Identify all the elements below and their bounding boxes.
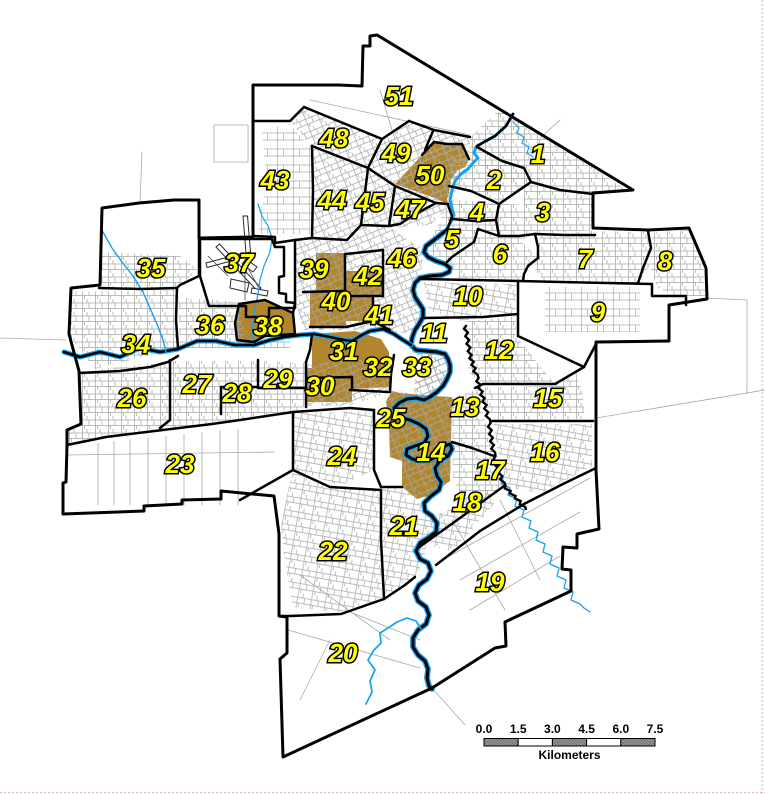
svg-text:32: 32 — [364, 352, 393, 382]
svg-text:16: 16 — [531, 437, 560, 467]
svg-text:28: 28 — [222, 378, 252, 408]
svg-text:7: 7 — [578, 244, 594, 274]
svg-text:6.0: 6.0 — [612, 722, 629, 736]
svg-text:20: 20 — [328, 638, 358, 668]
svg-text:50: 50 — [416, 160, 445, 190]
svg-text:44: 44 — [317, 185, 347, 215]
svg-text:47: 47 — [395, 194, 426, 224]
svg-text:31: 31 — [330, 336, 359, 366]
svg-text:19: 19 — [476, 567, 505, 597]
svg-text:10: 10 — [454, 281, 483, 311]
svg-text:4: 4 — [469, 197, 485, 227]
svg-text:3.0: 3.0 — [544, 722, 561, 736]
svg-text:4.5: 4.5 — [578, 722, 595, 736]
svg-text:2: 2 — [486, 165, 502, 195]
svg-text:34: 34 — [122, 329, 151, 359]
svg-text:5: 5 — [445, 224, 460, 254]
svg-text:6: 6 — [493, 239, 508, 269]
svg-text:1: 1 — [531, 139, 545, 169]
svg-text:9: 9 — [591, 297, 606, 327]
svg-text:46: 46 — [387, 243, 417, 273]
svg-text:13: 13 — [451, 392, 480, 422]
svg-text:33: 33 — [403, 352, 432, 382]
svg-text:22: 22 — [318, 536, 348, 566]
svg-text:45: 45 — [355, 187, 385, 217]
svg-text:14: 14 — [417, 437, 446, 467]
svg-text:27: 27 — [182, 369, 213, 399]
svg-text:15: 15 — [534, 383, 563, 413]
svg-text:49: 49 — [381, 138, 411, 168]
svg-text:8: 8 — [658, 246, 673, 276]
svg-text:41: 41 — [364, 300, 394, 330]
svg-text:29: 29 — [263, 364, 293, 394]
svg-text:18: 18 — [453, 487, 482, 517]
svg-text:Kilometers: Kilometers — [538, 748, 600, 762]
svg-text:17: 17 — [476, 455, 506, 485]
svg-text:37: 37 — [225, 248, 255, 278]
svg-text:23: 23 — [165, 449, 195, 479]
svg-text:30: 30 — [306, 371, 335, 401]
svg-text:1.5: 1.5 — [510, 722, 527, 736]
svg-text:3: 3 — [536, 197, 551, 227]
svg-text:36: 36 — [196, 310, 225, 340]
svg-text:51: 51 — [385, 81, 414, 111]
svg-text:11: 11 — [421, 318, 448, 348]
svg-text:48: 48 — [319, 123, 349, 153]
svg-text:39: 39 — [300, 254, 329, 284]
svg-text:24: 24 — [327, 441, 357, 471]
svg-text:25: 25 — [376, 403, 406, 433]
svg-text:43: 43 — [260, 165, 290, 195]
svg-text:21: 21 — [389, 511, 419, 541]
svg-text:40: 40 — [321, 286, 351, 316]
svg-text:12: 12 — [485, 335, 514, 365]
svg-text:26: 26 — [117, 383, 147, 413]
svg-text:7.5: 7.5 — [647, 722, 664, 736]
svg-text:35: 35 — [137, 253, 166, 283]
svg-text:42: 42 — [353, 261, 383, 291]
svg-text:0.0: 0.0 — [476, 722, 493, 736]
svg-text:38: 38 — [254, 311, 283, 341]
